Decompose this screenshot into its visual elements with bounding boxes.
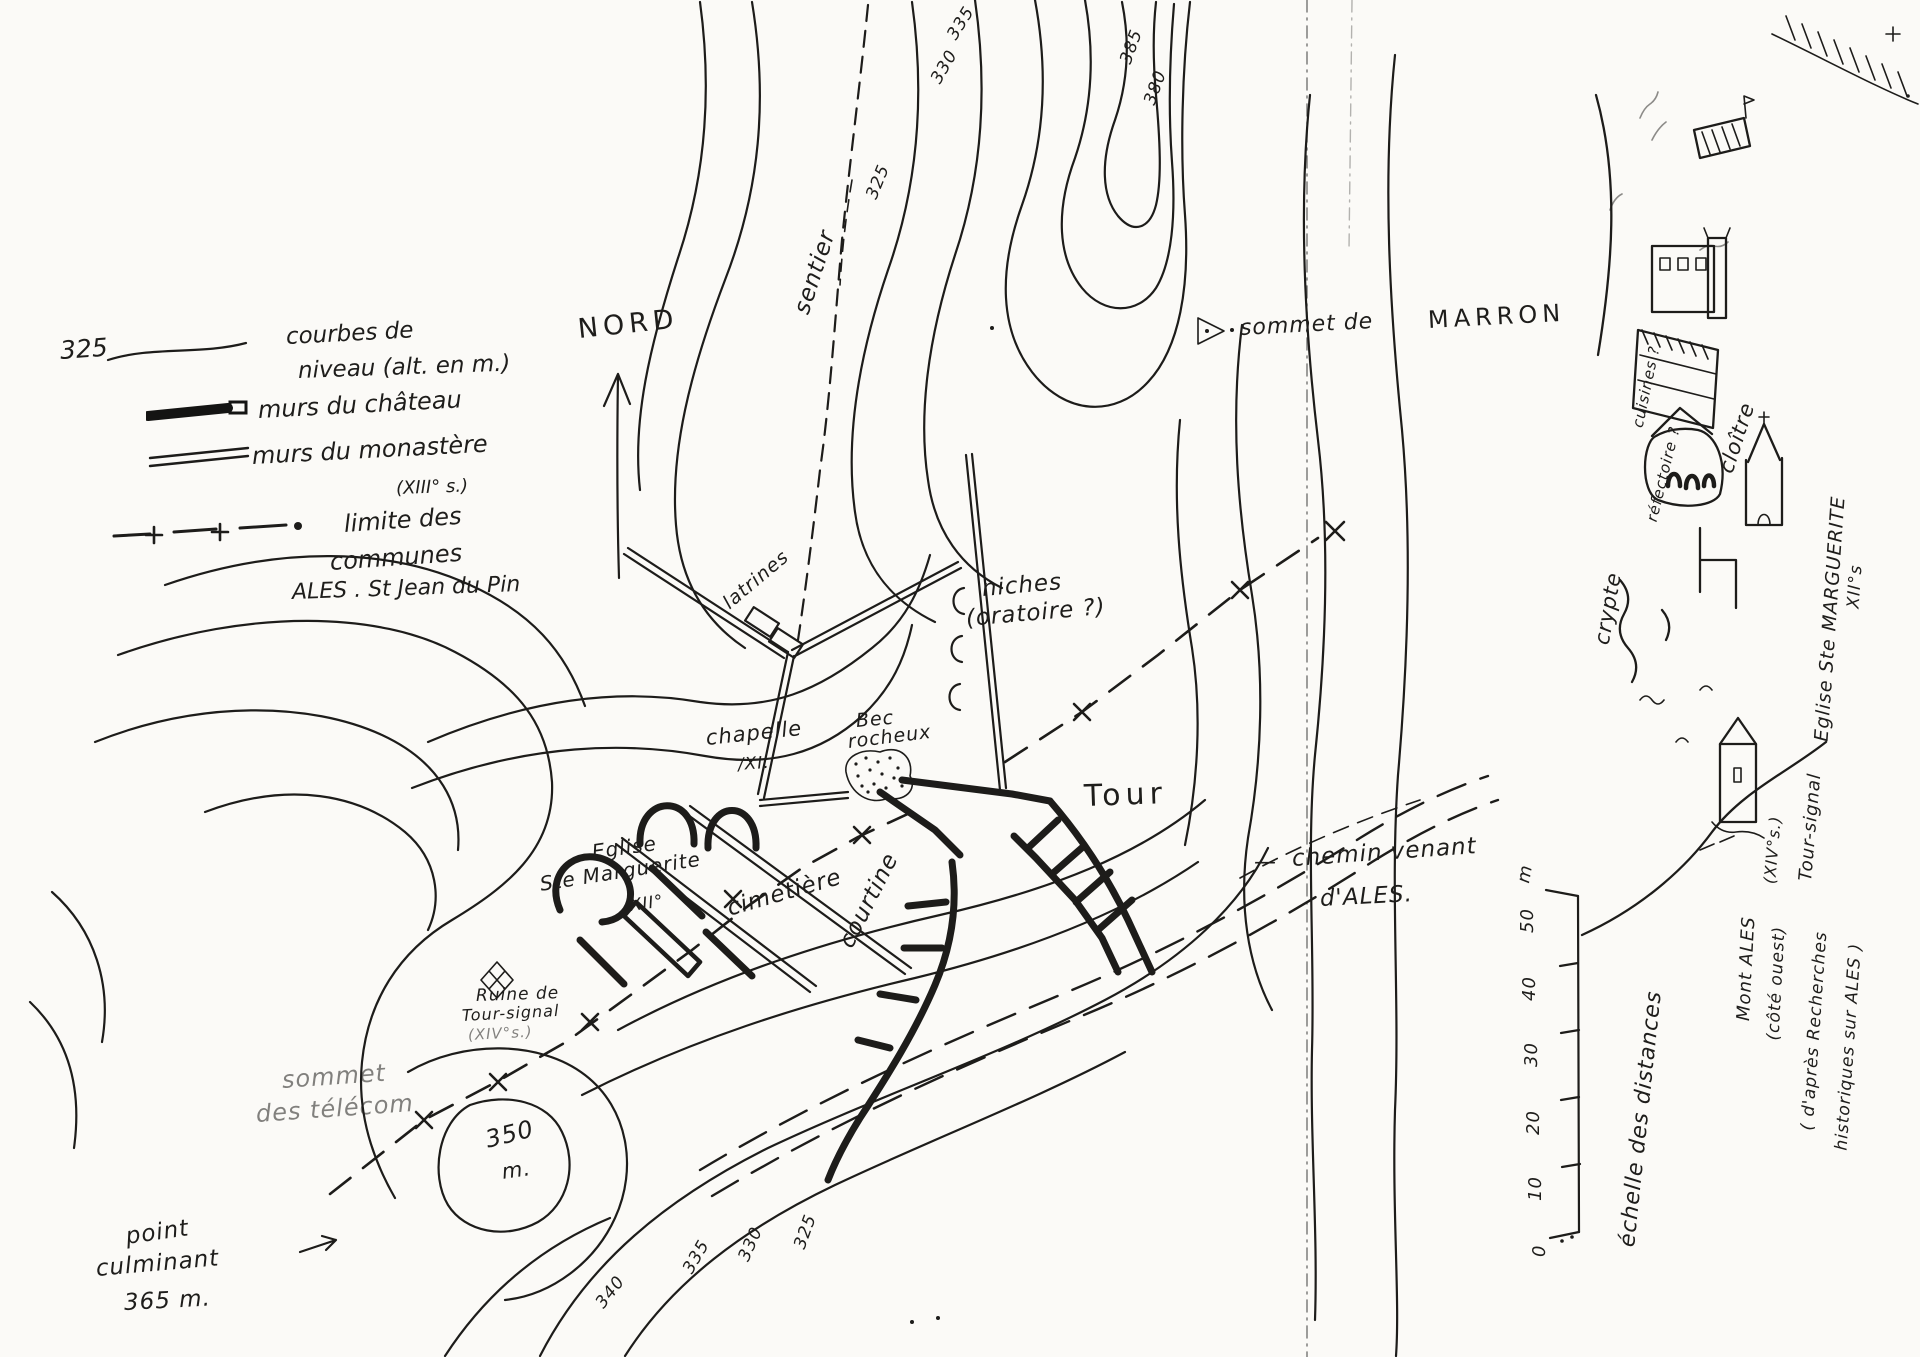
scanned-map-page: 325 courbes de niveau (alt. en m.) murs … (0, 0, 1920, 1357)
marron-label: MARRON (1427, 301, 1565, 332)
elev-350-m: m. (501, 1158, 533, 1183)
contour-lines (30, 0, 1408, 1356)
north-arrow (604, 374, 630, 578)
chemin-dash: — (1254, 852, 1277, 874)
legend-contour-sample (106, 338, 251, 366)
ruine-label-3: (XIV°s.) (468, 1025, 533, 1043)
point-markers (300, 318, 1234, 1324)
legend-limite-sample (112, 518, 342, 550)
eglise-label-3: XII° (629, 893, 665, 915)
scale-unit: m (1515, 863, 1536, 884)
commune-boundary (330, 522, 1344, 1194)
sentier-path (798, 5, 868, 640)
point-culminant-3: 365 m. (123, 1287, 211, 1315)
tour-label: Tour (1083, 779, 1167, 812)
chapelle-date: /XI. (737, 755, 770, 774)
monastery-sketch-panel (1582, 92, 1826, 935)
monastery-walls (616, 454, 1006, 992)
scale-10: 10 (1527, 1176, 1545, 1201)
legend-chateau-sample (146, 398, 261, 428)
legend-contour-value: 325 (59, 333, 109, 365)
scale-50: 50 (1519, 908, 1537, 933)
sommet-telecom-1: sommet (281, 1061, 387, 1092)
legend-monastere-sub: (XIII° s.) (396, 475, 469, 499)
scale-0: 0 (1531, 1245, 1549, 1257)
legend-monastere-sample (148, 442, 258, 472)
scale-40: 40 (1521, 976, 1539, 1001)
boundary-cross-marks (416, 522, 1344, 1128)
bec-rocheux-rock (846, 750, 912, 801)
scale-20: 20 (1525, 1110, 1543, 1135)
ridge-hatching (1772, 16, 1918, 104)
eglise-marguerite-panel-2: XII°s (1846, 564, 1866, 609)
chemin-label-2: d'ALES. (1319, 883, 1413, 911)
scale-bar (1546, 890, 1580, 1243)
scale-30: 30 (1523, 1042, 1541, 1067)
